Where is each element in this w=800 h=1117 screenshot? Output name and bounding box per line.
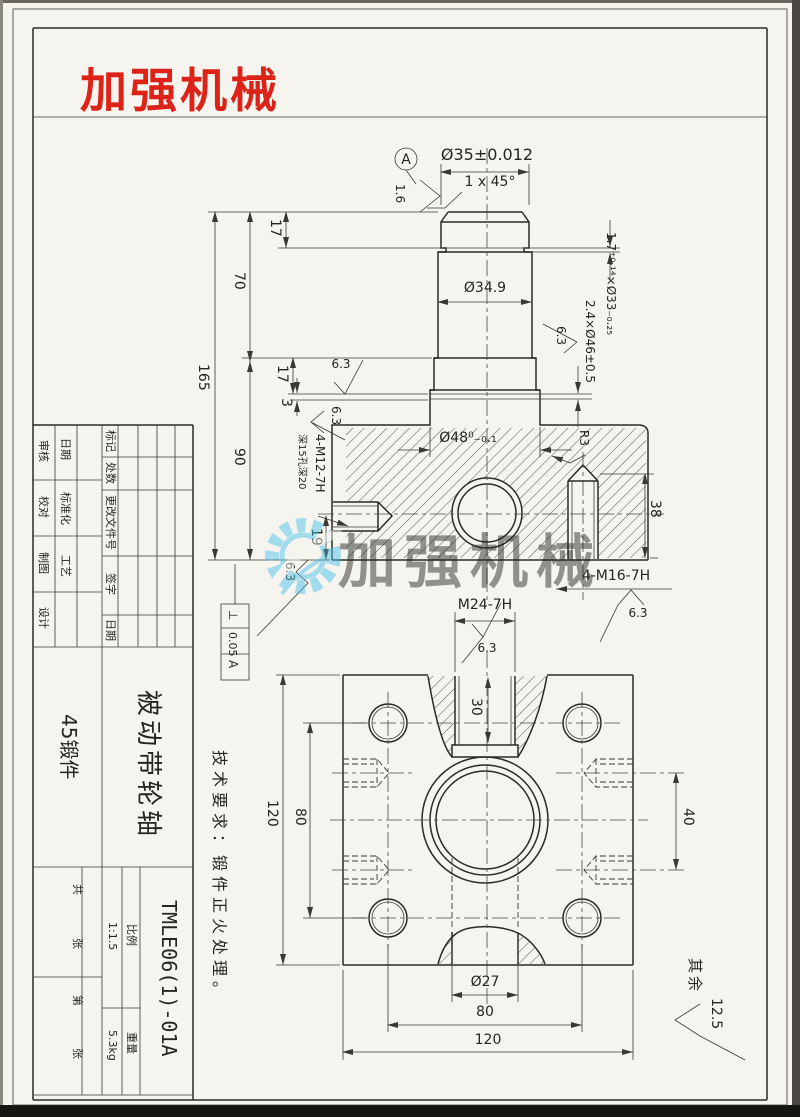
tb-weight-label: 重量 — [125, 1032, 139, 1054]
ra-1-6: 1.6 — [393, 184, 407, 203]
tb-label-biaoji: 标记 — [104, 430, 118, 452]
rest-roughness-value: 12.5 — [708, 998, 724, 1029]
chamfer-note: 1 x 45° — [465, 174, 516, 190]
tb-material: 45锻件 — [57, 714, 81, 779]
dim-90: 90 — [231, 448, 247, 466]
corner-hole-circles — [369, 704, 601, 937]
tb-label-genggai: 更改文件号 — [104, 495, 118, 550]
tb-sheet-di: 第 — [71, 995, 85, 1006]
dim-dia349: Ø34.9 — [464, 280, 506, 296]
dim-40: 40 — [680, 808, 696, 826]
dim-165: 165 — [195, 364, 211, 391]
ra63-groove3: 6.3 — [329, 406, 343, 425]
dim-dia35: Ø35±0.012 — [441, 145, 533, 164]
dim-groove46: 2.4×Ø46±0.5 — [583, 300, 597, 383]
tb-label-jiaodui: 校对 — [37, 496, 51, 518]
tech-requirements: 技术要求：锻件正火处理。 — [210, 750, 229, 1002]
tb-label-gongyi: 工艺 — [59, 555, 72, 577]
dim-m24: M24-7H — [458, 597, 512, 613]
label-m12: 4-M12-7H — [313, 434, 327, 493]
tb-label-biaozhunhua: 标准化 — [59, 492, 73, 525]
dim-80-bottom: 80 — [476, 1004, 494, 1020]
dim-r3: R3 — [577, 430, 591, 446]
bottom-view: M24-7H 6.3 30 120 80 40 Ø27 — [264, 597, 696, 1060]
tb-label-qianzi: 签字 — [104, 573, 118, 595]
fcf-symbol: ⊥ — [226, 610, 240, 620]
tb-drawing-no: TMLE06(1)-01A — [157, 900, 181, 1057]
tb-label-chushu: 处数 — [104, 462, 117, 484]
drawing-sheet: 加强机械 — [0, 0, 800, 1117]
drawing-canvas: 审核 校对 制图 设计 日期 标准化 工艺 标记 处数 更改文件号 签字 日期 … — [0, 0, 800, 1117]
label-m12-depth: 深15孔深20 — [296, 434, 308, 489]
dim-groove33: 1.7⁺⁰·¹⁴×Ø33₋₀.₂₅ — [604, 232, 618, 335]
ra63-m24: 6.3 — [477, 641, 496, 655]
dim-38: 38 — [647, 500, 663, 518]
ra63-m16: 6.3 — [628, 606, 647, 620]
datum-a-label: A — [401, 152, 411, 168]
tb-part-name: 被动带轮轴 — [133, 690, 163, 840]
tb-sheet-zhang2: 张 — [71, 1048, 84, 1059]
dim-dia27: Ø27 — [471, 974, 500, 990]
tb-label-shenhe: 审核 — [37, 440, 51, 462]
tb-label-zhitu: 制图 — [37, 552, 50, 574]
tb-label-riqi: 日期 — [104, 619, 117, 641]
front-view: Ø35±0.012 A 1.6 1 x 45° Ø34.9 Ø48⁰₋₀.₁ — [195, 145, 672, 680]
dim-17a: 17 — [267, 219, 283, 237]
tb-sheet-zhang1: 张 — [71, 938, 84, 949]
dim-120-bottom: 120 — [475, 1032, 502, 1048]
ra63-step: 6.3 — [331, 357, 350, 371]
dim-3: 3 — [278, 398, 294, 407]
dim-120-left: 120 — [264, 800, 280, 827]
dim-dia48: Ø48⁰₋₀.₁ — [439, 430, 497, 446]
ra63-groove: 6.3 — [554, 326, 568, 345]
tb-sheet-gong: 共 — [71, 884, 84, 895]
dim-17b: 17 — [274, 365, 290, 383]
tb-label-sheji: 设计 — [37, 607, 50, 629]
watermark: 加强机械 — [272, 525, 602, 596]
tb-label-riqi2: 日期 — [59, 438, 72, 460]
tb-weight-value: 5.3kg — [106, 1030, 119, 1061]
watermark-text: 加强机械 — [338, 528, 602, 596]
fcf-value: 0.05 — [226, 632, 239, 657]
tb-scale-label: 比例 — [125, 924, 139, 946]
title-block: 审核 校对 制图 设计 日期 标准化 工艺 标记 处数 更改文件号 签字 日期 … — [33, 425, 193, 1100]
rest-roughness-label: 其余 — [686, 958, 704, 994]
dim-30: 30 — [468, 698, 484, 716]
dim-70: 70 — [231, 272, 247, 290]
fcf-datum: A — [226, 660, 240, 669]
dim-80-left: 80 — [292, 808, 308, 826]
tb-scale-value: 1:1.5 — [106, 922, 119, 950]
